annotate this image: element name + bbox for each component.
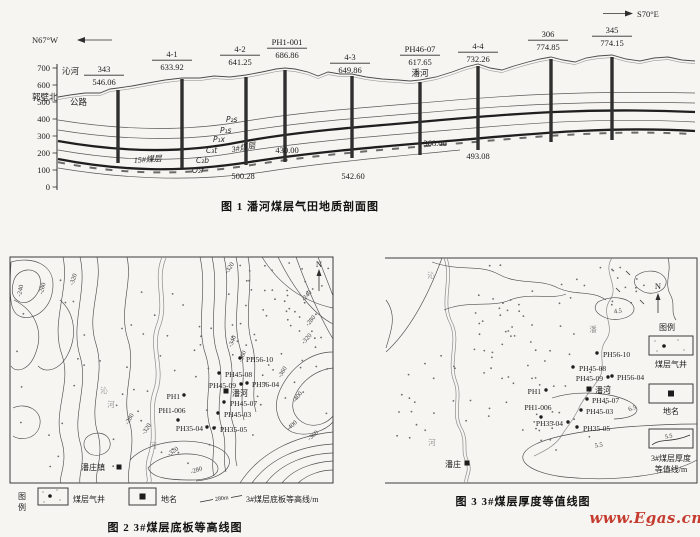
survey-dot — [142, 333, 144, 335]
well-dot — [239, 382, 242, 385]
well-name: 4-3 — [344, 52, 355, 62]
axis-tick-label: 600 — [37, 80, 50, 90]
survey-dot — [232, 324, 234, 326]
contour-label: -240 — [300, 289, 313, 303]
survey-dot — [160, 355, 162, 357]
axis-tick-label: 700 — [37, 63, 50, 73]
fig2-legend-place-label: 地名 — [161, 494, 177, 504]
survey-dot — [502, 302, 504, 304]
fig2-legend-contour-value: 280m — [215, 495, 230, 503]
survey-dot — [287, 295, 289, 297]
hachure-tick — [616, 288, 620, 292]
fig2-legend-contour-label: 3#煤层底板等高线/m — [246, 494, 319, 504]
survey-dot — [113, 438, 115, 440]
fig2-north-arrow-icon — [317, 269, 322, 276]
survey-dot — [237, 340, 239, 342]
survey-dot — [561, 284, 563, 286]
survey-dot — [424, 363, 426, 365]
contour-line — [13, 406, 40, 439]
survey-dot — [285, 397, 287, 399]
survey-dot — [209, 444, 211, 446]
surface-label: 公路 — [70, 97, 88, 107]
survey-dot — [147, 390, 149, 392]
survey-dot — [576, 279, 578, 281]
survey-dot — [248, 280, 250, 282]
survey-dot — [299, 316, 301, 318]
survey-dot — [398, 411, 400, 413]
survey-dot — [513, 382, 515, 384]
survey-dot — [538, 430, 540, 432]
strat-label: P₂s — [226, 115, 238, 124]
coal-seam-label: 15#煤层 — [134, 154, 164, 165]
place-symbol-icon — [668, 391, 674, 397]
survey-dot — [559, 302, 561, 304]
legend-dot — [654, 340, 655, 341]
survey-dot — [161, 451, 163, 453]
survey-dot — [252, 434, 254, 436]
well-dot — [610, 374, 613, 377]
survey-dot — [600, 267, 602, 269]
survey-dot — [122, 393, 124, 395]
survey-dot — [555, 449, 557, 451]
axis-tick-label: 100 — [37, 165, 50, 175]
survey-dot — [507, 330, 509, 332]
survey-dot — [301, 360, 303, 362]
survey-dot — [73, 385, 75, 387]
well-label: PH35-05 — [583, 424, 610, 433]
strat-label: C₂b — [196, 156, 209, 165]
fig3-contour-map: N 图例 煤层气井 地名 5.5 3#煤层厚度 — [385, 258, 697, 508]
survey-dot — [77, 358, 79, 360]
contour-label: -320 — [68, 273, 78, 287]
contour-line — [12, 270, 40, 303]
survey-dot — [570, 297, 572, 299]
axis-tick-label: 400 — [37, 114, 50, 124]
watermark: www.Egas.cn — [589, 509, 700, 527]
contour-line — [282, 461, 333, 483]
survey-dot — [167, 335, 169, 337]
contour-line — [318, 257, 333, 296]
survey-dot — [533, 421, 535, 423]
survey-dot — [505, 331, 507, 333]
survey-dot — [414, 401, 416, 403]
survey-dot — [210, 327, 212, 329]
survey-dot — [154, 314, 156, 316]
contour-label: 4.5 — [614, 308, 623, 316]
well-elevation: 774.15 — [600, 38, 623, 48]
survey-dot — [536, 414, 538, 416]
place-symbol-icon — [140, 494, 146, 500]
survey-dot — [411, 411, 413, 413]
survey-dot — [523, 315, 525, 317]
survey-dot — [272, 369, 274, 371]
survey-dot — [511, 326, 513, 328]
legend-dot — [59, 499, 60, 500]
survey-dot — [288, 262, 290, 264]
survey-dot — [506, 401, 508, 403]
survey-dot — [174, 370, 176, 372]
river-label: 河 — [428, 438, 436, 447]
contour-line — [200, 257, 214, 476]
survey-dot — [239, 265, 241, 267]
survey-dot — [518, 310, 520, 312]
well-elevation: 732.26 — [466, 54, 489, 64]
well-name: 4-4 — [472, 41, 484, 51]
survey-dot — [492, 298, 494, 300]
depth-label: 500.28 — [231, 171, 254, 181]
survey-dot — [23, 313, 25, 315]
survey-dot — [240, 323, 242, 325]
well-elevation: 686.86 — [275, 50, 298, 60]
survey-dot — [396, 435, 398, 437]
survey-dot — [268, 364, 270, 366]
survey-dot — [257, 396, 259, 398]
survey-dot — [483, 350, 485, 352]
survey-dot — [262, 309, 264, 311]
survey-dot — [20, 422, 22, 424]
contour-label: -280 — [190, 465, 204, 475]
survey-dot — [130, 324, 132, 326]
contour-line — [224, 257, 237, 466]
survey-dot — [249, 270, 251, 272]
well-label: PH1-006 — [524, 403, 551, 412]
survey-dot — [140, 420, 142, 422]
surface-label: 沁河 — [62, 66, 80, 76]
survey-dot — [454, 367, 456, 369]
well-dot — [216, 411, 219, 414]
survey-dot — [83, 364, 85, 366]
town-label: 潘河 — [232, 388, 248, 398]
survey-dot — [549, 439, 551, 441]
survey-dot — [530, 341, 532, 343]
survey-dot — [60, 279, 62, 281]
survey-dot — [553, 385, 555, 387]
survey-dot — [433, 412, 435, 414]
contour-line — [252, 444, 333, 483]
fig3-legend-well-label: 煤层气井 — [655, 359, 687, 369]
survey-dot — [540, 440, 542, 442]
well-symbol-icon — [48, 494, 52, 498]
survey-dot — [501, 378, 503, 380]
contour-line — [93, 257, 100, 483]
river-label: 沁 — [100, 385, 108, 395]
survey-dot — [288, 308, 290, 310]
surface-label: 郭壁北 — [32, 92, 58, 102]
well-dot — [571, 365, 574, 368]
contour-line — [38, 300, 74, 370]
survey-dot — [491, 357, 493, 359]
river-label: 沁 — [427, 270, 435, 280]
survey-dot — [549, 350, 551, 352]
legend-dot — [656, 350, 657, 351]
strat-label: C₃t — [206, 146, 218, 155]
survey-dot — [544, 360, 546, 362]
well-dot — [595, 351, 598, 354]
contour-label: -280 — [124, 412, 136, 426]
well-name: 4-1 — [166, 49, 177, 59]
scanned-paper-page: N67°W S70°E 图 1 潘河煤层气田地质剖面图 700600500400… — [0, 0, 700, 537]
survey-dot — [301, 268, 303, 270]
contour-label: -340 — [227, 335, 238, 349]
survey-dot — [453, 400, 455, 402]
depth-label: 368.00 — [423, 138, 446, 148]
contour-line — [298, 470, 333, 483]
well-label: PH35-04 — [536, 419, 563, 428]
direction-label-west: N67°W — [32, 35, 58, 45]
survey-dot — [558, 412, 560, 414]
survey-dot — [327, 268, 329, 270]
survey-dot — [126, 366, 128, 368]
well-elevation: 546.06 — [92, 77, 115, 87]
survey-dot — [522, 429, 524, 431]
survey-dot — [251, 289, 253, 291]
survey-dot — [315, 346, 317, 348]
contour-line — [432, 262, 606, 300]
contour-line — [266, 453, 333, 483]
well-name: 306 — [542, 29, 555, 39]
fig2-legend-title-1: 图 — [18, 492, 26, 501]
survey-dot — [245, 305, 247, 307]
contour-line — [130, 441, 230, 481]
depth-label: 493.08 — [466, 151, 489, 161]
survey-dot — [228, 293, 230, 295]
contour-line — [212, 257, 226, 472]
contour-line — [58, 257, 65, 483]
contour-line — [634, 271, 666, 293]
well-label: PH45-07 — [230, 399, 257, 408]
legend-dot — [677, 339, 678, 340]
survey-dot — [73, 301, 75, 303]
survey-dot — [416, 424, 418, 426]
well-dot — [245, 381, 248, 384]
survey-dot — [49, 466, 51, 468]
survey-dot — [264, 290, 266, 292]
survey-dot — [271, 289, 273, 291]
survey-dot — [281, 353, 283, 355]
hachure-tick — [626, 271, 630, 275]
contour-line — [11, 300, 39, 370]
well-dot — [238, 356, 241, 359]
survey-dot — [264, 265, 266, 267]
well-label: PH35-05 — [220, 425, 247, 434]
fig3-north-arrow-icon — [656, 293, 661, 300]
well-dot — [222, 400, 225, 403]
contour-label: 5.5 — [594, 441, 603, 449]
survey-dot — [611, 304, 613, 306]
well-elevation: 617.65 — [408, 57, 431, 67]
well-name: PH1-001 — [272, 37, 303, 47]
fig2-legend-well-box — [38, 488, 68, 505]
contour-label: -400 — [291, 390, 304, 404]
survey-dot — [501, 344, 503, 346]
town-label: 潘河 — [595, 385, 611, 395]
survey-dot — [409, 437, 411, 439]
well-label: PH1 — [167, 392, 181, 401]
well-dot — [585, 397, 588, 400]
survey-dot — [112, 465, 114, 467]
survey-dot — [320, 337, 322, 339]
survey-dot — [271, 269, 273, 271]
depth-label: 542.60 — [341, 171, 364, 181]
survey-dot — [573, 333, 575, 335]
survey-dot — [116, 405, 118, 407]
well-dot — [212, 426, 215, 429]
well-name: 345 — [606, 25, 619, 35]
survey-dot — [589, 436, 591, 438]
contour-label: -360 — [277, 365, 289, 379]
survey-dot — [560, 325, 562, 327]
contour-label: -320 — [166, 445, 180, 458]
survey-dot — [479, 333, 481, 335]
west-arrow-head-icon — [77, 37, 85, 43]
survey-dot — [643, 285, 645, 287]
contour-line — [262, 257, 333, 308]
fig3-legend-place-label: 地名 — [663, 406, 679, 416]
well-label: PH1 — [528, 387, 542, 396]
contour-line — [444, 294, 566, 310]
survey-dot — [470, 400, 472, 402]
survey-dot — [208, 368, 210, 370]
axis-tick-label: 0 — [46, 182, 50, 192]
survey-dot — [321, 285, 323, 287]
fig3-caption: 图 3 3#煤层厚度等值线图 — [456, 494, 591, 508]
survey-dot — [254, 334, 256, 336]
survey-dot — [200, 335, 202, 337]
survey-dot — [539, 384, 541, 386]
survey-dot — [133, 389, 135, 391]
well-dot — [566, 420, 569, 423]
survey-dot — [83, 334, 85, 336]
survey-dot — [266, 315, 268, 317]
survey-dot — [489, 265, 491, 267]
fig2-caption: 图 2 3#煤层底板等高线图 — [108, 520, 243, 534]
survey-dot — [514, 335, 516, 337]
depth-label: 430.00 — [275, 145, 298, 155]
survey-dot — [465, 420, 467, 422]
river-line-2 — [447, 258, 470, 483]
survey-dot — [314, 337, 316, 339]
well-dot — [217, 371, 220, 374]
survey-dot — [141, 291, 143, 293]
contour-label: -320 — [300, 332, 313, 346]
survey-dot — [573, 418, 575, 420]
survey-dot — [518, 304, 520, 306]
survey-dot — [200, 344, 202, 346]
hachure-tick — [640, 300, 644, 304]
survey-dot — [531, 324, 533, 326]
survey-dot — [260, 404, 262, 406]
contour-line — [84, 433, 110, 455]
survey-dot — [206, 409, 208, 411]
survey-dot — [612, 301, 614, 303]
fig3-north-label: N — [655, 281, 661, 291]
survey-dot — [61, 423, 63, 425]
fig3-legend-contour-label-1: 3#煤层厚度 — [651, 453, 691, 463]
fig2-legend-well-label: 煤层气井 — [73, 494, 105, 504]
well-dot — [182, 393, 185, 396]
survey-dot — [635, 291, 637, 293]
survey-dot — [326, 413, 328, 415]
well-label: PH45-03 — [224, 410, 251, 419]
survey-dot — [489, 408, 491, 410]
survey-dot — [565, 385, 567, 387]
fig3-legend-title: 图例 — [659, 322, 675, 332]
survey-dot — [612, 270, 614, 272]
survey-dot — [474, 349, 476, 351]
survey-dot — [630, 302, 632, 304]
well-label: PH56-10 — [603, 350, 630, 359]
contour-label: -280 — [38, 282, 48, 295]
survey-dot — [187, 462, 189, 464]
survey-dot — [299, 330, 301, 332]
well-label: PH56-04 — [617, 373, 644, 382]
survey-dot — [488, 415, 490, 417]
survey-dot — [195, 376, 197, 378]
well-label: PH45-09 — [576, 374, 603, 383]
contour-line — [386, 300, 392, 348]
axis-tick-label: 300 — [37, 131, 50, 141]
survey-dot — [492, 352, 494, 354]
well-dot — [205, 425, 208, 428]
direction-label-east: S70°E — [637, 9, 659, 19]
well-label: PH45-07 — [592, 396, 619, 405]
survey-dot — [475, 312, 477, 314]
survey-dot — [121, 328, 123, 330]
legend-dot — [43, 501, 44, 502]
survey-dot — [315, 366, 317, 368]
well-elevation: 641.25 — [228, 57, 251, 67]
survey-dot — [245, 344, 247, 346]
survey-dot — [625, 287, 627, 289]
survey-dot — [294, 311, 296, 313]
well-dot — [544, 388, 547, 391]
contour-line — [148, 454, 218, 480]
well-label: PH35-04 — [176, 424, 203, 433]
survey-dot — [194, 349, 196, 351]
well-dot — [579, 408, 582, 411]
well-elevation: 774.85 — [536, 42, 559, 52]
survey-dot — [315, 313, 317, 315]
survey-dot — [635, 287, 637, 289]
figures-canvas: N67°W S70°E 图 1 潘河煤层气田地质剖面图 700600500400… — [0, 0, 700, 537]
fig3-legend-contour-label-2: 等值线/m — [655, 464, 688, 474]
legend-dot — [683, 349, 684, 350]
survey-dot — [286, 310, 288, 312]
fig1-caption: 图 1 潘河煤层气田地质剖面图 — [221, 199, 379, 213]
survey-dot — [499, 307, 501, 309]
survey-dot — [312, 288, 314, 290]
survey-dot — [584, 285, 586, 287]
survey-dot — [636, 278, 638, 280]
town-square — [587, 387, 592, 392]
well-label: PH1-006 — [158, 406, 185, 415]
survey-dot — [48, 434, 50, 436]
well-name: 343 — [98, 64, 111, 74]
river-label: 河 — [149, 441, 157, 450]
survey-dot — [408, 374, 410, 376]
survey-dot — [262, 374, 264, 376]
well-label: PH45-08 — [579, 364, 606, 373]
contour-line — [124, 257, 131, 483]
fig2-legend-contour-symbol — [231, 496, 242, 498]
survey-dot — [284, 300, 286, 302]
survey-dot — [172, 293, 174, 295]
survey-dot — [401, 394, 403, 396]
axis-tick-label: 200 — [37, 148, 50, 158]
river-line — [444, 258, 467, 483]
legend-dot — [56, 489, 57, 490]
contour-label: 6.5 — [627, 404, 637, 413]
